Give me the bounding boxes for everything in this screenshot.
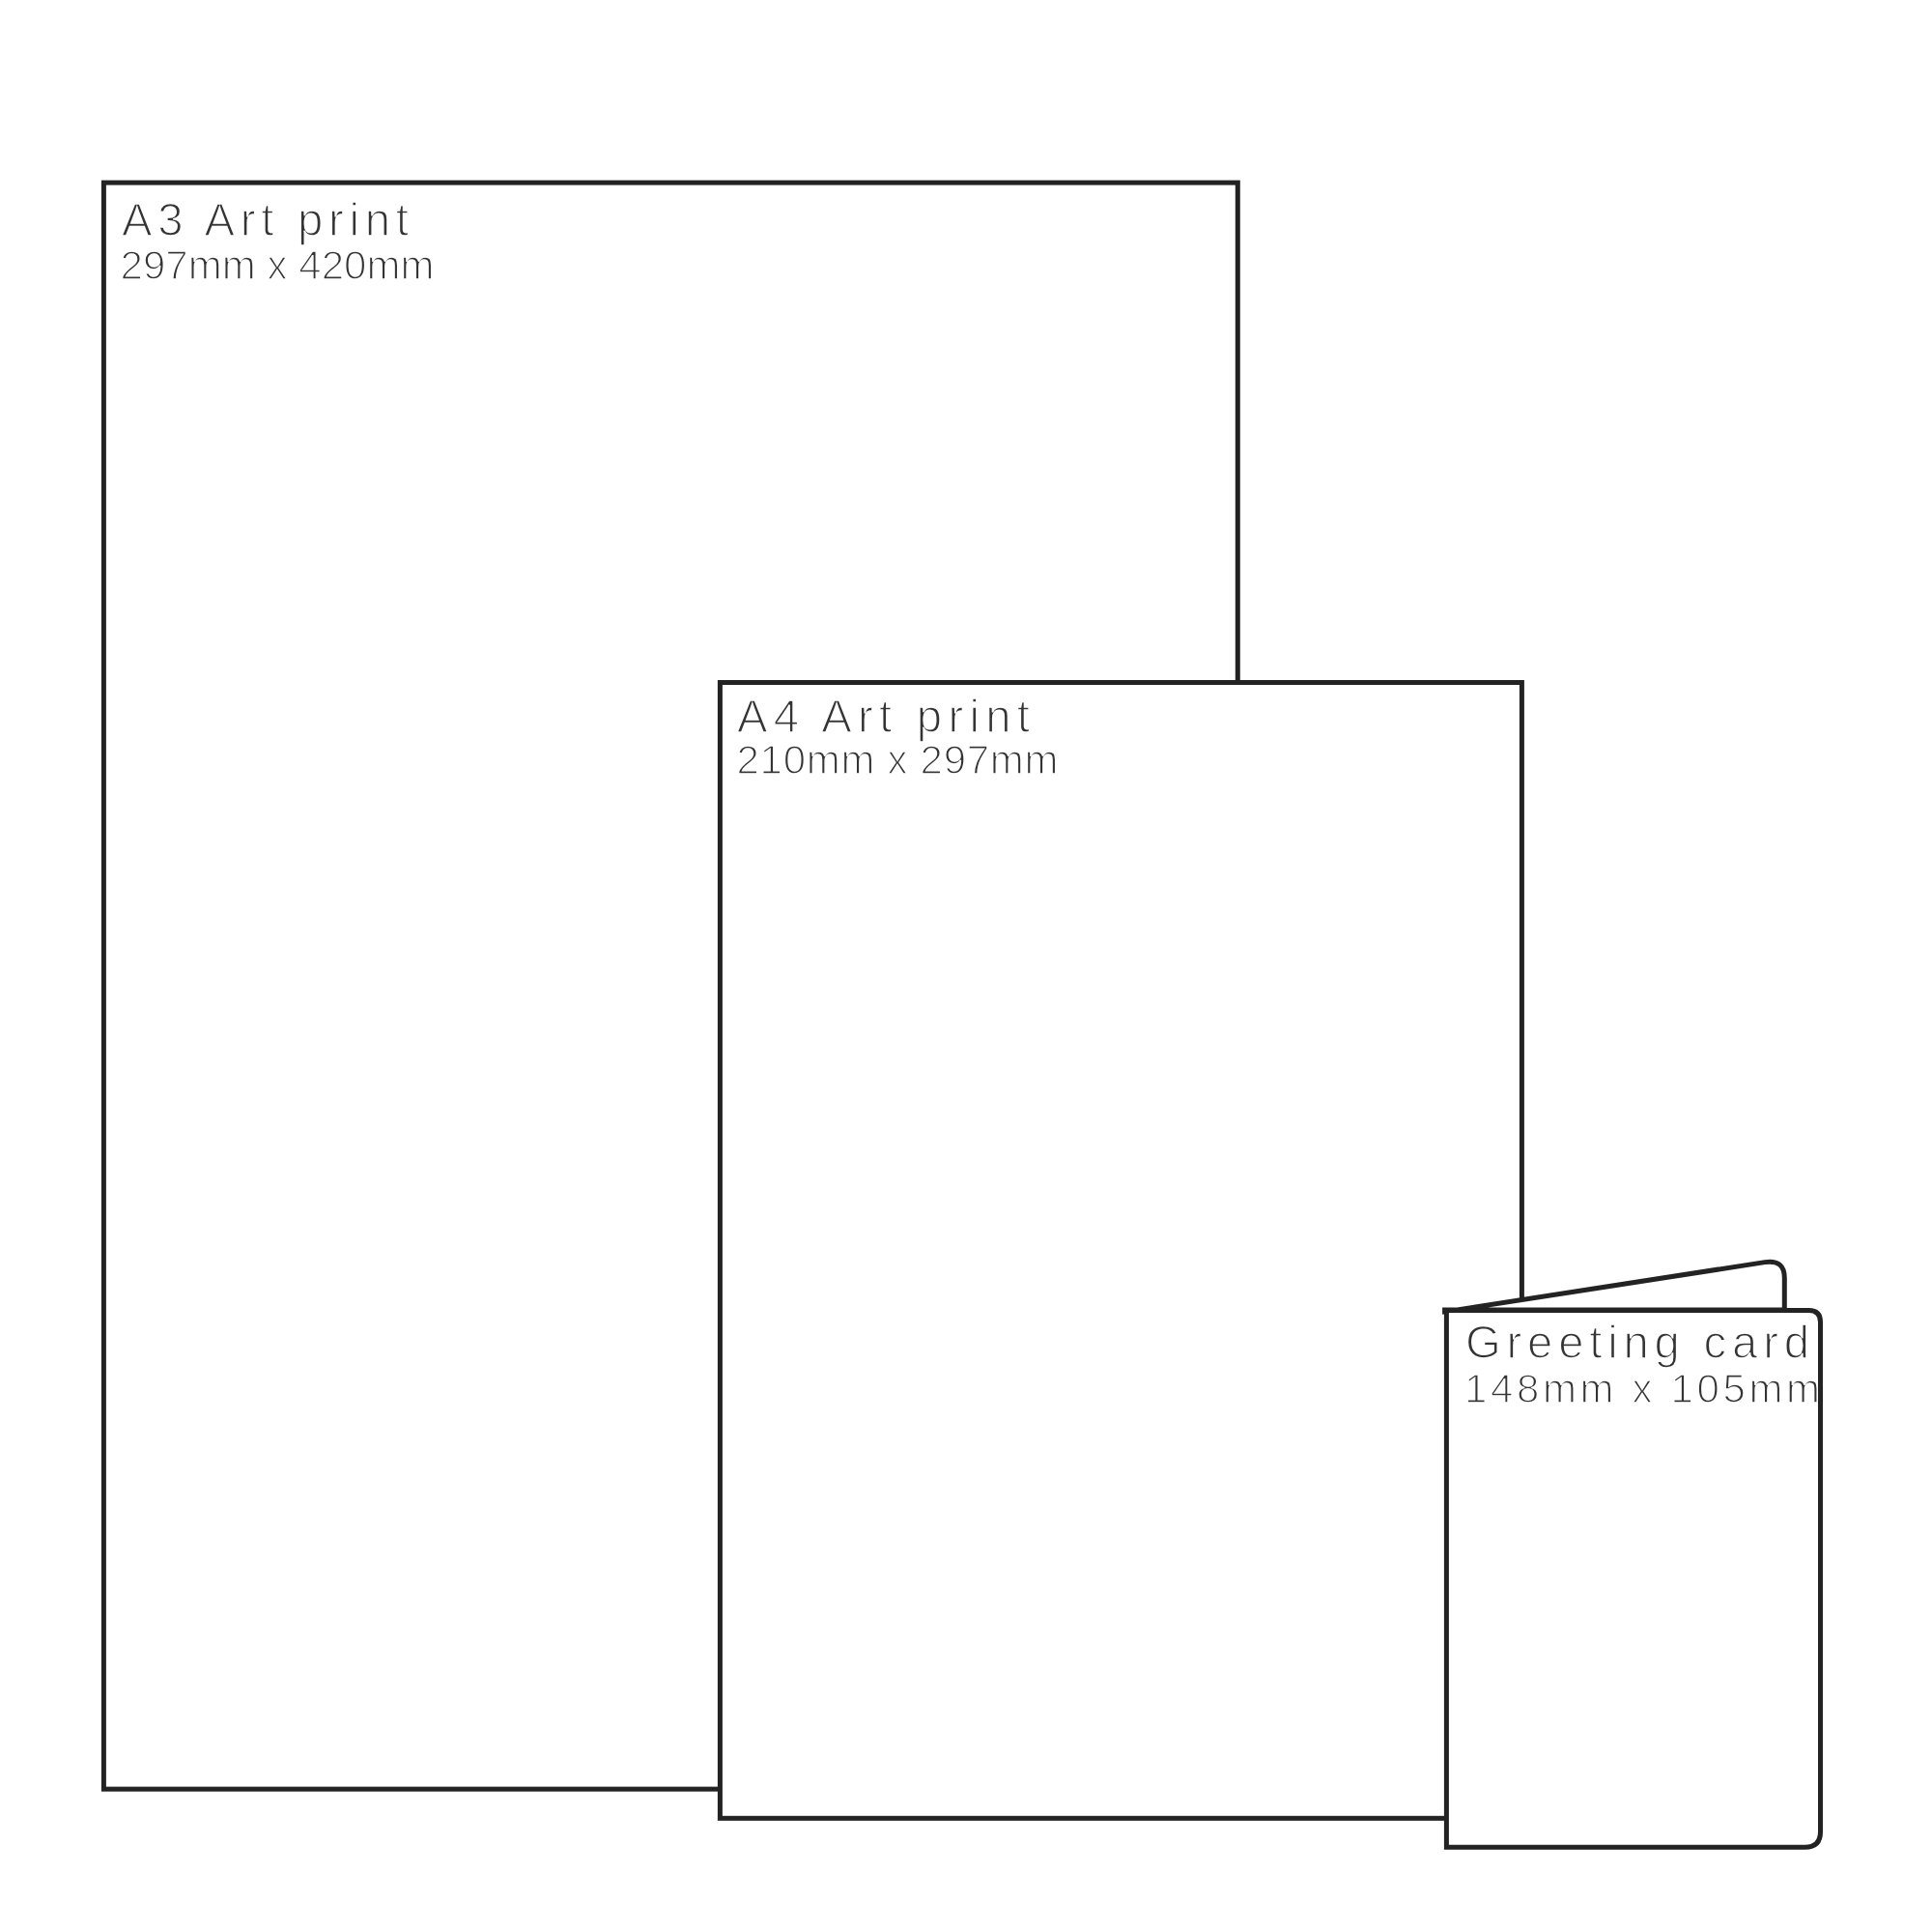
svg-text:297mm x 420mm: 297mm x 420mm: [121, 242, 435, 288]
svg-text:A3 Art print: A3 Art print: [122, 194, 409, 245]
svg-text:210mm x 297mm: 210mm x 297mm: [737, 737, 1059, 782]
svg-text:A4 Art print: A4 Art print: [737, 691, 1030, 742]
svg-text:148mm x 105mm: 148mm x 105mm: [1464, 1366, 1820, 1411]
